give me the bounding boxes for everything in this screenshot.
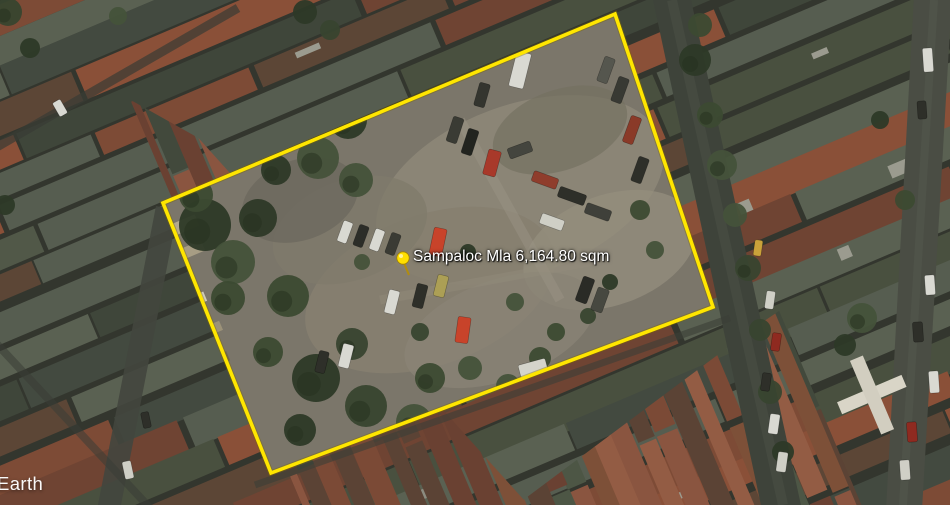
earth-viewport[interactable]: Sampaloc Mla 6,164.80 sqm Earth: [0, 0, 950, 505]
pushpin-icon: [397, 252, 409, 264]
earth-watermark: Earth: [0, 473, 43, 495]
placemark-label[interactable]: Sampaloc Mla 6,164.80 sqm: [413, 248, 609, 266]
